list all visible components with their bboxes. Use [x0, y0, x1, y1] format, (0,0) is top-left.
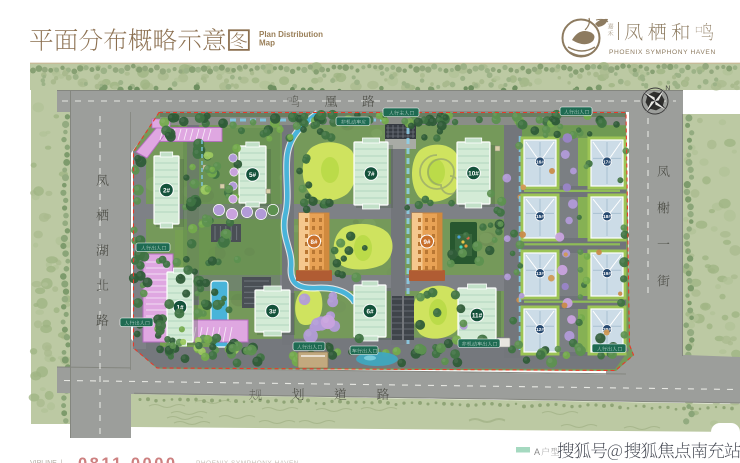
svg-text:10#: 10# — [468, 170, 479, 177]
svg-text:PHOENIX SYMPHONY HAVEN: PHOENIX SYMPHONY HAVEN — [609, 49, 716, 56]
svg-text:13#: 13# — [536, 271, 544, 277]
svg-text:A: A — [534, 447, 540, 457]
svg-text:0811 0000: 0811 0000 — [78, 455, 178, 463]
svg-text:2#: 2# — [163, 187, 171, 194]
svg-text:6#: 6# — [366, 308, 374, 315]
svg-text:19#: 19# — [603, 271, 611, 277]
svg-text:3#: 3# — [269, 308, 277, 315]
svg-text:16#: 16# — [536, 160, 544, 166]
svg-text:17#: 17# — [603, 160, 611, 166]
svg-text:11#: 11# — [472, 312, 483, 319]
svg-text:12#: 12# — [536, 327, 544, 333]
svg-text:5#: 5# — [249, 172, 257, 179]
svg-text:N: N — [665, 85, 670, 92]
svg-text:Map: Map — [259, 39, 275, 48]
svg-text:9#: 9# — [424, 239, 431, 246]
svg-text:15#: 15# — [536, 214, 544, 220]
svg-text:7#: 7# — [367, 171, 375, 178]
svg-text:18#: 18# — [603, 214, 611, 220]
svg-text:8#: 8# — [311, 239, 318, 246]
